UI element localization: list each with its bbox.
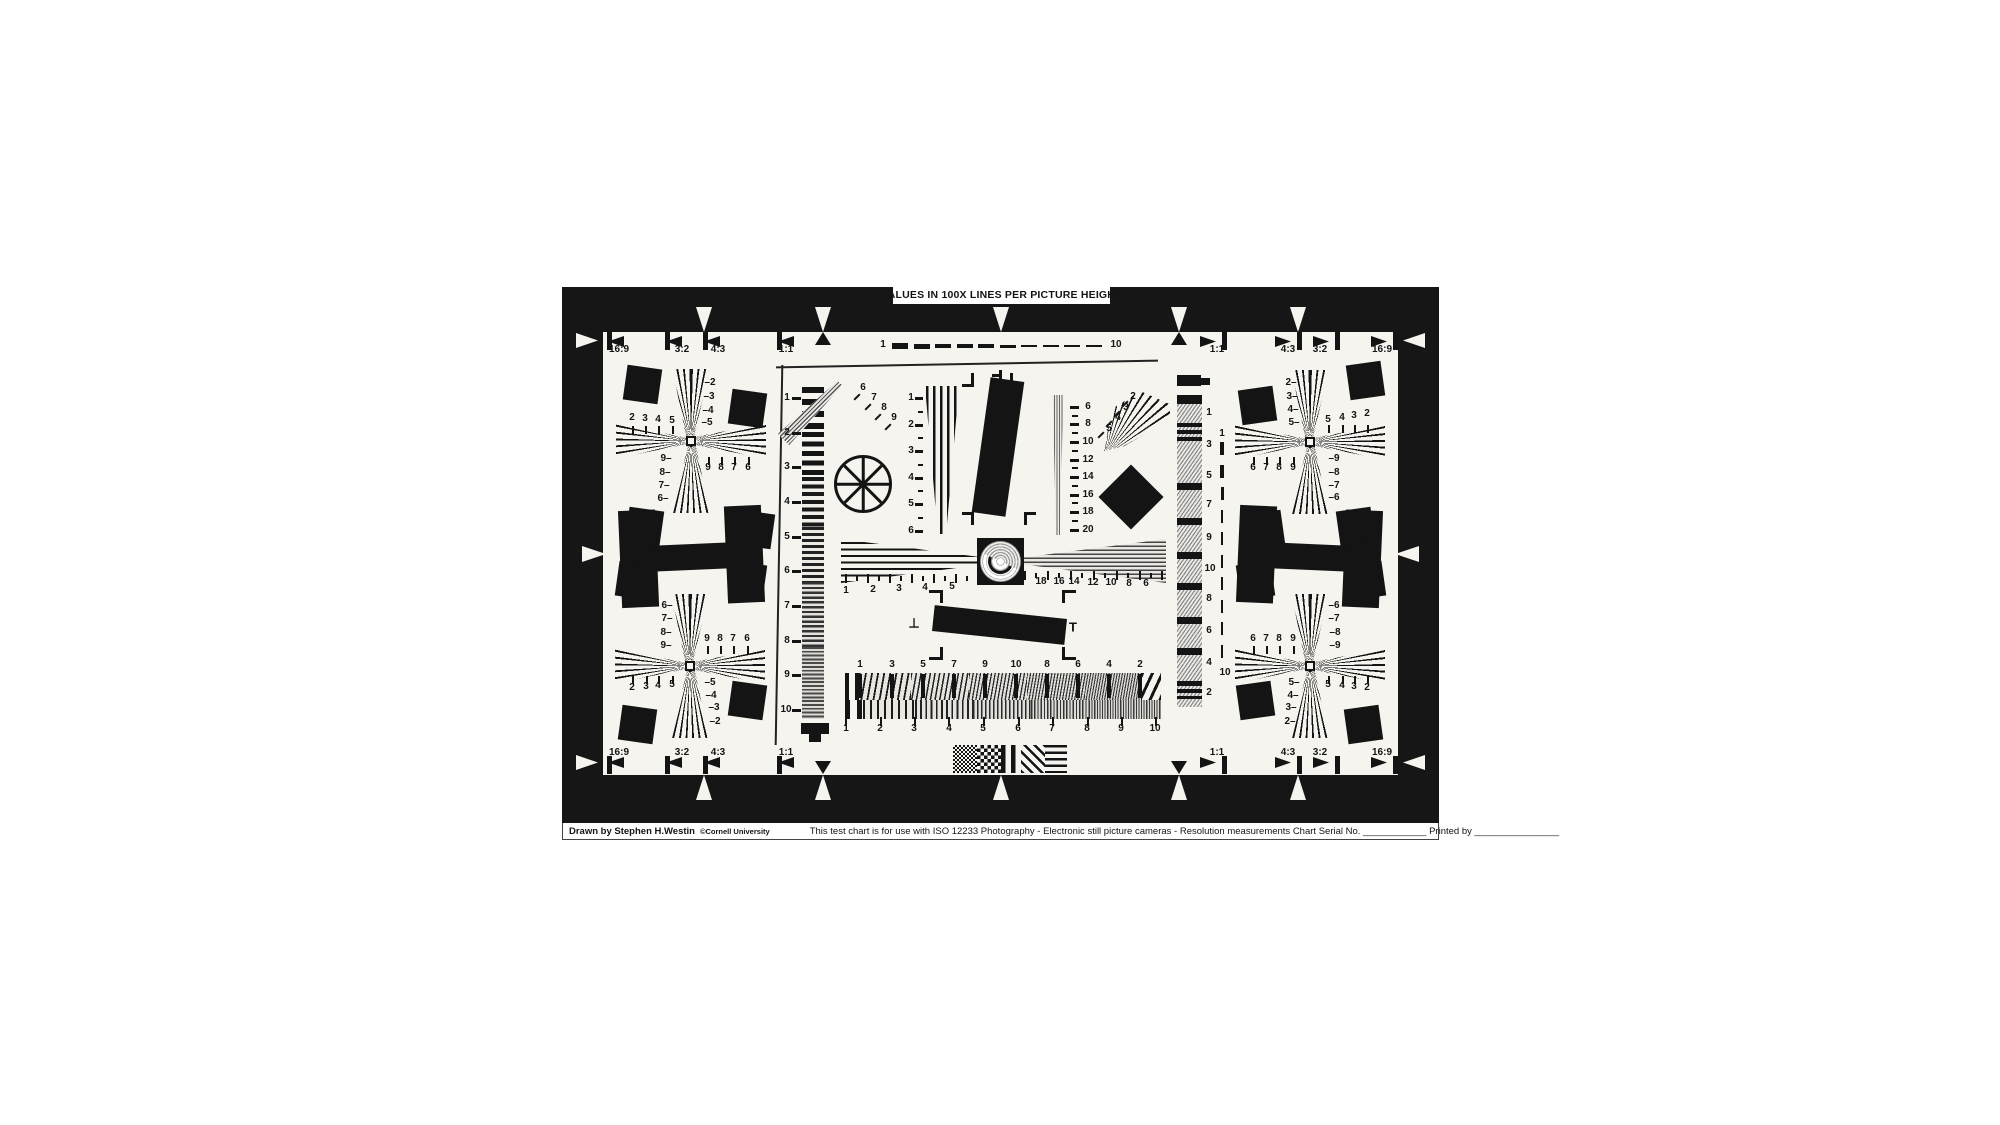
- strip-segment: [802, 527, 824, 582]
- chart-title: VALUES IN 100X LINES PER PICTURE HEIGHT: [893, 286, 1110, 304]
- tilted-black-square: [623, 365, 663, 405]
- star-center-square: [1305, 661, 1315, 671]
- tick-mark: [918, 437, 923, 439]
- spoked-wheel-pattern: [834, 455, 892, 513]
- chart-number-label: 6: [860, 383, 866, 393]
- chart-number-label: 12: [1082, 455, 1093, 465]
- chart-number-label: 4–: [1287, 405, 1298, 415]
- right-dash: [1221, 577, 1223, 590]
- chart-number-label: –6: [1328, 493, 1339, 503]
- tick-mark: [809, 734, 821, 742]
- chart-number-label: 8: [717, 634, 723, 644]
- aspect-ratio-label: 3:2: [1313, 748, 1327, 758]
- tick-mark: [792, 674, 801, 677]
- tick-mark: [1052, 717, 1054, 726]
- chart-number-label: 9: [891, 413, 897, 423]
- chart-number-label: –9: [1329, 641, 1340, 651]
- tick-mark: [792, 605, 801, 608]
- tick-mark: [1076, 674, 1080, 698]
- tick-mark: [1072, 485, 1078, 487]
- sweep-segment: [1089, 700, 1161, 719]
- tick-mark: [1335, 332, 1340, 350]
- tick-mark: [1018, 717, 1020, 726]
- chart-number-label: 10: [1110, 340, 1121, 350]
- tick-mark: [792, 709, 801, 712]
- chart-number-label: 3: [784, 462, 790, 472]
- chart-number-label: 3–: [1286, 392, 1297, 402]
- tick-mark: [703, 756, 708, 774]
- tick-mark: [1072, 450, 1078, 452]
- tick-mark: [1062, 590, 1065, 603]
- tick-mark: [720, 646, 722, 654]
- tick-mark: [1177, 423, 1202, 427]
- tick-mark: [983, 674, 987, 698]
- chart-number-label: 7: [1206, 500, 1212, 510]
- chart-number-label: 5: [669, 416, 675, 426]
- tick-mark: [1293, 457, 1295, 465]
- chart-number-label: 10: [1010, 660, 1021, 670]
- chart-number-label: 6: [1085, 402, 1091, 412]
- chart-number-label: –3: [703, 392, 714, 402]
- tilted-black-square: [1246, 510, 1286, 550]
- tick-mark: [1107, 674, 1111, 698]
- tilted-black-square: [728, 681, 768, 721]
- chart-number-label: 5: [1325, 415, 1331, 425]
- tick-mark: [940, 647, 943, 660]
- tick-mark: [971, 373, 974, 386]
- registration-triangle-left: [1403, 755, 1425, 770]
- chart-number-label: 2: [1137, 660, 1143, 670]
- tick-mark: [1072, 502, 1078, 504]
- tick-mark: [1070, 529, 1079, 532]
- tick-mark: [1138, 674, 1142, 698]
- chart-number-label: 10: [1204, 564, 1215, 574]
- tick-mark: [792, 501, 801, 504]
- tick-mark: [1070, 571, 1072, 580]
- chart-number-label: 8: [1085, 419, 1091, 429]
- right-dash: [1221, 600, 1223, 613]
- chart-number-label: 1: [784, 393, 790, 403]
- chart-number-label: 8: [1206, 594, 1212, 604]
- top-dash: [1043, 345, 1059, 347]
- sweep-segment: [969, 673, 1027, 700]
- horizontal-lines: [1045, 745, 1067, 773]
- chart-number-label: 16: [1053, 577, 1064, 587]
- tick-mark: [708, 457, 710, 465]
- chart-number-label: 2: [908, 420, 914, 430]
- zone-center-dot: [997, 558, 1004, 565]
- page: VALUES IN 100X LINES PER PICTURE HEIGHT: [0, 0, 2000, 1125]
- chart-number-label: 2: [784, 428, 790, 438]
- chart-number-label: 7: [784, 601, 790, 611]
- chart-number-label: 5: [1206, 471, 1212, 481]
- tick-mark: [1177, 696, 1202, 699]
- tick-mark: [915, 503, 923, 506]
- chart-number-label: 3: [642, 414, 648, 424]
- tick-mark: [858, 674, 862, 698]
- tick-mark: [880, 717, 882, 726]
- tick-mark: [801, 723, 829, 734]
- chart-number-label: 10: [1082, 437, 1093, 447]
- chart-number-label: 10: [1105, 578, 1116, 588]
- chart-number-label: 4: [1339, 413, 1345, 423]
- vertical-bars: [1001, 745, 1021, 773]
- tick-mark: [733, 646, 735, 654]
- top-dash: [1021, 345, 1037, 348]
- sweep-segment: [845, 700, 863, 719]
- tick-mark: [748, 457, 750, 465]
- tick-mark: [1104, 573, 1106, 578]
- chart-number-label: 2–: [1284, 717, 1295, 727]
- chart-number-label: 1: [1206, 408, 1212, 418]
- chart-number-label: 6: [1206, 626, 1212, 636]
- right-dash: [1221, 645, 1222, 658]
- tick-mark: [952, 674, 956, 698]
- tick-mark: [777, 756, 782, 774]
- chart-number-label: 7: [951, 660, 957, 670]
- tick-mark: [792, 432, 801, 435]
- tick-mark: [1279, 457, 1281, 465]
- tick-mark: [658, 676, 660, 684]
- tick-mark: [1045, 674, 1049, 698]
- tick-mark: [1293, 646, 1295, 654]
- chart-number-label: 7: [1263, 634, 1269, 644]
- chart-number-label: 5: [908, 499, 914, 509]
- tick-mark: [1297, 756, 1302, 774]
- top-dash: [935, 344, 951, 349]
- tilted-black-square: [1238, 386, 1278, 426]
- chart-number-label: 16: [1082, 490, 1093, 500]
- iso12233-test-chart: VALUES IN 100X LINES PER PICTURE HEIGHT: [562, 287, 1439, 824]
- tick-mark: [1116, 571, 1118, 580]
- footer-copyright: ©Cornell University: [700, 827, 770, 836]
- tick-mark: [665, 756, 670, 774]
- chart-number-label: 18: [1035, 577, 1046, 587]
- tick-mark: [1328, 425, 1330, 433]
- chart-number-label: 4: [655, 415, 661, 425]
- chart-number-label: ⊥: [908, 617, 919, 630]
- tick-mark: [966, 576, 968, 581]
- chart-number-label: 8–: [660, 628, 671, 638]
- chart-number-label: 6–: [657, 494, 668, 504]
- tick-mark: [1014, 674, 1018, 698]
- tick-mark: [889, 574, 891, 583]
- tick-mark: [1058, 573, 1060, 578]
- chart-number-label: 4–: [1287, 691, 1298, 701]
- chart-number-label: –5: [704, 678, 715, 688]
- chart-number-label: 7–: [658, 481, 669, 491]
- registration-triangle-up: [1290, 775, 1306, 800]
- registration-triangle-down: [815, 307, 831, 332]
- tick-mark: [1335, 756, 1340, 774]
- tick-mark: [918, 490, 923, 492]
- chart-number-label: 9: [704, 634, 710, 644]
- chart-number-label: 3: [908, 446, 914, 456]
- tick-mark: [921, 674, 925, 698]
- chart-number-label: 10: [1219, 668, 1230, 678]
- chart-number-label: 5: [784, 532, 790, 542]
- registration-triangle-down: [1290, 307, 1306, 332]
- strip-segment: [802, 477, 824, 527]
- chart-number-label: 8: [1044, 660, 1050, 670]
- chart-number-label: 4: [1106, 660, 1112, 670]
- registration-triangle-down: [1171, 307, 1187, 332]
- chart-number-label: 7–: [661, 614, 672, 624]
- chart-footer: Drawn by Stephen H.Westin ©Cornell Unive…: [562, 823, 1439, 840]
- aspect-ratio-label: 3:2: [675, 345, 689, 355]
- tick-mark: [915, 424, 923, 427]
- tick-mark: [915, 530, 923, 533]
- chart-number-label: 2: [1130, 392, 1136, 402]
- top-dash: [892, 343, 908, 349]
- chart-number-label: 6: [908, 526, 914, 536]
- chart-number-label: 9: [784, 670, 790, 680]
- tick-mark: [1253, 457, 1255, 465]
- chart-number-label: 9: [1206, 533, 1212, 543]
- tick-mark: [1177, 430, 1202, 434]
- tilted-black-square: [728, 561, 768, 601]
- tick-mark: [1222, 756, 1227, 774]
- footer-drawn-by: Drawn by Stephen H.Westin: [569, 826, 695, 837]
- chart-number-label: 8: [1276, 634, 1282, 644]
- chart-number-label: 6: [1250, 634, 1256, 644]
- registration-triangle-up: [696, 775, 712, 800]
- sweep-segment: [973, 700, 1031, 719]
- top-dash: [957, 344, 973, 348]
- chart-number-label: 10: [780, 705, 791, 715]
- aspect-ratio-label: 4:3: [711, 748, 725, 758]
- tick-mark: [1161, 571, 1163, 580]
- tick-mark: [948, 717, 950, 726]
- right-dash: [1220, 442, 1224, 455]
- tick-mark: [1177, 375, 1201, 386]
- chart-number-label: 14: [1082, 472, 1093, 482]
- tick-mark: [1072, 415, 1078, 417]
- top-dash: [978, 344, 994, 348]
- top-dash: [1064, 345, 1080, 347]
- tick-mark: [672, 426, 674, 434]
- tick-mark: [1266, 646, 1268, 654]
- chart-number-label: –2: [709, 717, 720, 727]
- tick-mark: [914, 717, 916, 726]
- footer-usage-text: This test chart is for use with ISO 1223…: [810, 826, 1559, 837]
- left-frequency-strip: [802, 387, 824, 719]
- chart-number-label: 2: [1206, 688, 1212, 698]
- top-dash: [1086, 345, 1102, 346]
- tick-mark: [890, 674, 894, 698]
- chart-number-label: 7: [871, 393, 877, 403]
- tick-mark: [1222, 332, 1227, 350]
- tick-mark: [922, 576, 924, 581]
- diagonal-lines: [1021, 745, 1045, 773]
- right-dash: [1221, 487, 1224, 500]
- tick-mark: [1342, 676, 1344, 684]
- registration-triangle-up: [1171, 775, 1187, 800]
- chart-number-label: 6: [1075, 660, 1081, 670]
- sweep-segment: [845, 673, 859, 700]
- checkerboard-line-block: [953, 745, 1067, 773]
- tick-mark: [1150, 573, 1152, 578]
- tick-mark: [1177, 395, 1202, 404]
- tick-mark: [911, 574, 913, 583]
- tick-mark: [977, 574, 979, 583]
- chart-number-label: 3–: [1285, 703, 1296, 713]
- tick-mark: [918, 517, 923, 519]
- tilted-black-square: [736, 510, 776, 550]
- tick-mark: [992, 374, 999, 377]
- tick-mark: [944, 576, 946, 581]
- tick-mark: [1070, 511, 1079, 514]
- registration-triangle-up: [815, 775, 831, 800]
- tick-mark: [1177, 437, 1202, 441]
- chart-number-label: 5: [949, 582, 955, 592]
- tick-mark: [1070, 423, 1079, 426]
- chart-number-label: 1: [843, 586, 849, 596]
- tick-mark: [1177, 583, 1202, 590]
- chart-number-label: 6: [1143, 579, 1149, 589]
- h-crossbar: [1267, 542, 1351, 572]
- star-center-square: [685, 661, 695, 671]
- sweep-segment: [1031, 700, 1089, 719]
- chart-number-label: –8: [1328, 468, 1339, 478]
- aspect-ratio-label: 3:2: [1313, 345, 1327, 355]
- tick-mark: [878, 576, 880, 581]
- tick-mark: [1155, 717, 1157, 726]
- chart-number-label: 9: [1290, 634, 1296, 644]
- tick-mark: [734, 457, 736, 465]
- sweep-segment: [1141, 673, 1161, 700]
- tick-mark: [845, 574, 847, 583]
- tick-mark: [1342, 425, 1344, 433]
- chart-number-label: 1: [880, 340, 886, 350]
- chart-number-label: –7: [1328, 481, 1339, 491]
- chart-number-label: 9–: [660, 454, 671, 464]
- chart-number-label: 8–: [659, 468, 670, 478]
- tick-mark: [792, 570, 801, 573]
- tick-mark: [1010, 373, 1013, 386]
- tilted-black-square: [625, 507, 665, 547]
- tick-mark: [1024, 512, 1027, 525]
- registration-triangle-down: [993, 307, 1009, 332]
- chart-number-label: 2: [1364, 409, 1370, 419]
- registration-triangle-right: [576, 333, 598, 348]
- tilted-black-square: [1344, 705, 1384, 745]
- aspect-ratio-label: 4:3: [1281, 748, 1295, 758]
- chart-number-label: 4: [922, 583, 928, 593]
- chart-number-label: 2: [629, 413, 635, 423]
- aspect-ratio-label: 16:9: [1372, 345, 1392, 355]
- tick-mark: [1070, 441, 1079, 444]
- chart-number-label: –3: [708, 703, 719, 713]
- tick-mark: [1024, 571, 1026, 580]
- tick-mark: [918, 464, 923, 466]
- tick-mark: [1177, 617, 1202, 624]
- tick-mark: [1070, 494, 1079, 497]
- tick-mark: [707, 646, 709, 654]
- chart-number-label: –5: [701, 418, 712, 428]
- tilted-black-square: [728, 389, 768, 429]
- right-frequency-strip: [1177, 395, 1202, 707]
- tick-mark: [1393, 332, 1398, 350]
- chart-number-label: 8: [881, 403, 887, 413]
- right-dash: [1221, 510, 1224, 523]
- tick-mark: [1072, 520, 1078, 522]
- chart-number-label: 2: [1364, 683, 1370, 693]
- tick-mark: [1070, 459, 1079, 462]
- tick-mark: [1121, 717, 1123, 726]
- tick-mark: [1047, 571, 1049, 580]
- chart-number-label: 9: [982, 660, 988, 670]
- chart-number-label: T: [1069, 621, 1077, 634]
- chart-number-label: 3: [1351, 411, 1357, 421]
- chart-number-label: 5–: [1288, 418, 1299, 428]
- tick-mark: [1177, 518, 1202, 525]
- tilted-black-square: [1336, 507, 1376, 547]
- tick-mark: [955, 574, 957, 583]
- top-dash: [1000, 345, 1016, 348]
- tick-mark: [900, 576, 902, 581]
- tick-mark: [646, 676, 648, 684]
- chart-number-label: –8: [1329, 628, 1340, 638]
- chart-number-label: 9–: [660, 641, 671, 651]
- chart-number-label: 1: [908, 393, 914, 403]
- tick-mark: [1087, 717, 1089, 726]
- chart-number-label: 1: [857, 660, 863, 670]
- tick-mark: [918, 411, 923, 413]
- chart-number-label: 2: [629, 683, 635, 693]
- tick-mark: [867, 574, 869, 583]
- tick-mark: [1127, 573, 1129, 578]
- registration-triangle-down: [696, 307, 712, 332]
- chart-number-label: 6–: [661, 601, 672, 611]
- sweep-segment: [911, 673, 969, 700]
- tick-mark: [672, 676, 674, 684]
- coarse-checker: [977, 745, 1001, 773]
- top-dash: [914, 344, 930, 349]
- chart-number-label: 1: [1219, 429, 1225, 439]
- tick-mark: [1201, 378, 1210, 385]
- tick-mark: [971, 512, 974, 525]
- chart-number-label: –4: [702, 406, 713, 416]
- chart-number-label: 5: [920, 660, 926, 670]
- tick-mark: [607, 756, 612, 774]
- tick-mark: [1393, 756, 1398, 774]
- sweep-segment: [863, 700, 915, 719]
- tick-mark: [792, 466, 801, 469]
- tilted-black-square: [618, 705, 658, 745]
- h-crossbar: [649, 542, 733, 572]
- tick-mark: [721, 457, 723, 465]
- strip-segment: [802, 432, 824, 477]
- registration-triangle-left: [1395, 546, 1419, 562]
- fine-checker: [953, 745, 977, 773]
- chart-number-label: 6: [744, 634, 750, 644]
- tick-mark: [1177, 648, 1202, 655]
- strip-segment: [802, 582, 824, 647]
- center-zone-plate-target: [977, 538, 1024, 585]
- tick-mark: [940, 590, 943, 603]
- aspect-ratio-label: 3:2: [675, 748, 689, 758]
- zone-plate: [980, 541, 1021, 582]
- tick-mark: [1279, 646, 1281, 654]
- sweep-segment: [859, 673, 911, 700]
- chart-number-label: 4: [1206, 658, 1212, 668]
- tick-mark: [1072, 432, 1078, 434]
- chart-number-label: 6: [784, 566, 790, 576]
- tick-mark: [1177, 552, 1202, 559]
- chart-number-label: –9: [1328, 454, 1339, 464]
- registration-triangle-up: [993, 775, 1009, 800]
